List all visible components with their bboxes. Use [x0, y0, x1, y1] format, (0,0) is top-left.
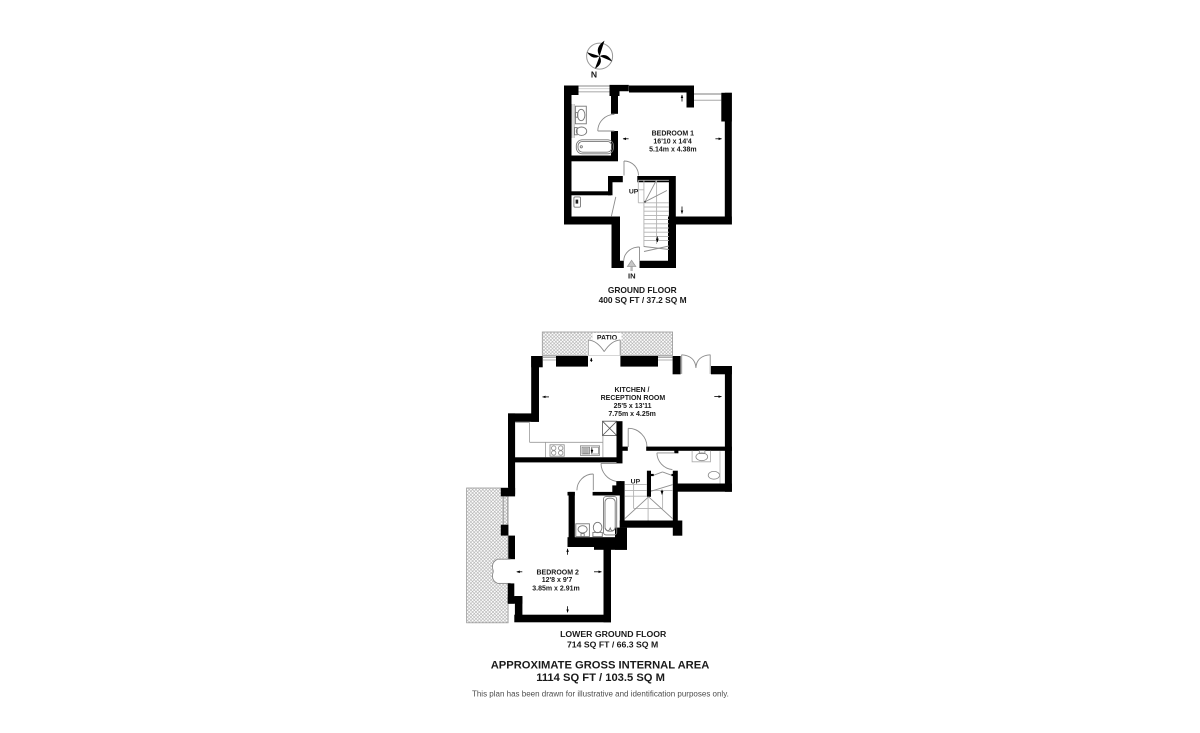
- svg-text:This plan has been drawn for i: This plan has been drawn for illustrativ…: [472, 689, 729, 698]
- svg-text:IN: IN: [628, 271, 636, 280]
- svg-text:RECEPTION ROOM: RECEPTION ROOM: [601, 395, 666, 402]
- svg-text:LOWER GROUND FLOOR: LOWER GROUND FLOOR: [560, 629, 667, 639]
- svg-text:UP: UP: [631, 479, 641, 486]
- svg-text:APPROXIMATE GROSS INTERNAL ARE: APPROXIMATE GROSS INTERNAL AREA: [491, 659, 710, 671]
- svg-text:714 SQ FT / 66.3 SQ M: 714 SQ FT / 66.3 SQ M: [567, 640, 658, 650]
- svg-text:GROUND FLOOR: GROUND FLOOR: [608, 285, 677, 295]
- svg-text:1114 SQ FT / 103.5 SQ M: 1114 SQ FT / 103.5 SQ M: [536, 672, 665, 684]
- svg-text:25'5 x 13'11: 25'5 x 13'11: [614, 403, 652, 410]
- svg-text:5.14m x 4.38m: 5.14m x 4.38m: [649, 147, 696, 154]
- svg-text:7.75m x 4.25m: 7.75m x 4.25m: [608, 411, 655, 418]
- svg-text:12'8 x 9'7: 12'8 x 9'7: [542, 577, 573, 584]
- svg-text:KITCHEN /: KITCHEN /: [615, 387, 650, 394]
- svg-text:BEDROOM 1: BEDROOM 1: [652, 131, 695, 138]
- svg-text:BEDROOM 2: BEDROOM 2: [536, 569, 579, 576]
- svg-text:3.85m x 2.91m: 3.85m x 2.91m: [532, 585, 579, 592]
- svg-text:16'10 x 14'4: 16'10 x 14'4: [653, 139, 691, 146]
- svg-text:N: N: [591, 70, 597, 80]
- svg-text:UP: UP: [629, 189, 639, 196]
- svg-text:400 SQ FT / 37.2 SQ M: 400 SQ FT / 37.2 SQ M: [599, 295, 687, 305]
